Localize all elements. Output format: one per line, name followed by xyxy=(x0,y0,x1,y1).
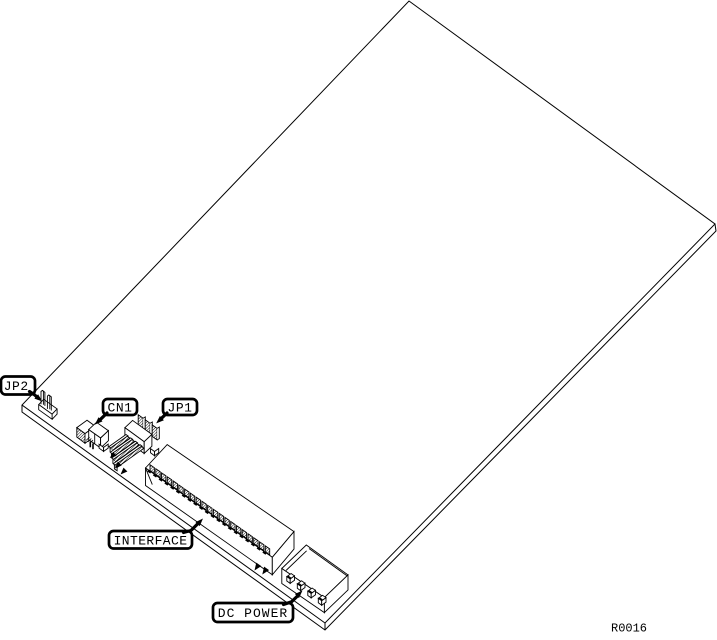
svg-text:JP1: JP1 xyxy=(168,401,193,416)
svg-text:CN1: CN1 xyxy=(108,401,133,416)
svg-text:DC POWER: DC POWER xyxy=(218,606,288,621)
svg-text:JP2: JP2 xyxy=(4,379,29,394)
svg-text:INTERFACE: INTERFACE xyxy=(114,533,188,548)
svg-text:R0016: R0016 xyxy=(611,622,647,636)
